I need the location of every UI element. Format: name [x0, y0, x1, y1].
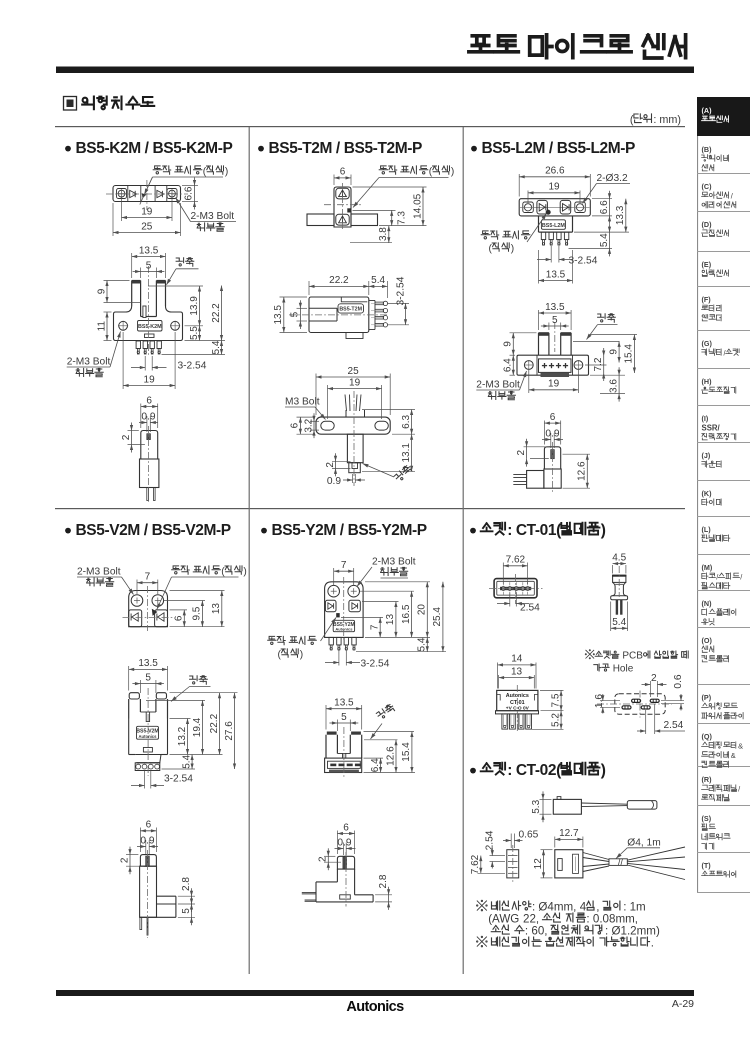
svg-text:BS5-K2M / BS5-K2M-P: BS5-K2M / BS5-K2M-P — [76, 140, 233, 157]
svg-text:0.9: 0.9 — [327, 476, 341, 487]
svg-text:6.6: 6.6 — [599, 200, 610, 214]
svg-text:(I): (I) — [702, 414, 709, 423]
svg-text:9.5: 9.5 — [192, 606, 203, 620]
svg-text:13.5: 13.5 — [545, 302, 565, 313]
svg-text:26.6: 26.6 — [545, 166, 565, 177]
svg-text:Autonics: Autonics — [335, 627, 353, 632]
svg-text:PCB: PCB — [622, 651, 643, 662]
svg-text:6.4: 6.4 — [503, 358, 514, 372]
svg-text:19.4: 19.4 — [192, 717, 203, 737]
svg-text:(J): (J) — [702, 451, 711, 460]
svg-text:A-29: A-29 — [672, 998, 694, 1010]
svg-text:5.5: 5.5 — [189, 326, 200, 340]
svg-text:7.3: 7.3 — [397, 211, 408, 225]
svg-text:13.1: 13.1 — [401, 443, 412, 463]
svg-text:Ø4mm,: Ø4mm, — [538, 901, 576, 914]
svg-text:3-2.54: 3-2.54 — [396, 276, 407, 305]
svg-text:2.8: 2.8 — [181, 877, 192, 891]
svg-text:27.6: 27.6 — [224, 721, 235, 741]
svg-text:2.54: 2.54 — [484, 830, 495, 850]
svg-text:13.9: 13.9 — [189, 296, 200, 316]
svg-text:7: 7 — [341, 560, 347, 571]
svg-text:): ) — [601, 762, 606, 779]
svg-text:(R): (R) — [702, 775, 713, 784]
svg-text:6: 6 — [340, 167, 346, 178]
svg-text:): ) — [601, 522, 606, 539]
svg-text:13: 13 — [511, 666, 523, 677]
svg-text:12.7: 12.7 — [559, 828, 579, 839]
svg-text:0.6: 0.6 — [673, 674, 684, 688]
svg-text:5.4: 5.4 — [417, 637, 428, 651]
svg-text:2: 2 — [651, 673, 657, 684]
svg-text:13: 13 — [385, 614, 396, 626]
svg-text:): ) — [225, 167, 228, 178]
svg-text:5.3: 5.3 — [531, 799, 542, 813]
svg-text:19: 19 — [349, 377, 361, 388]
svg-text:19: 19 — [141, 206, 153, 217]
svg-text:25: 25 — [141, 221, 153, 232]
svg-text:5.4: 5.4 — [371, 275, 385, 286]
svg-text:: CT-02(: : CT-02( — [507, 762, 562, 779]
svg-text:5.2: 5.2 — [550, 713, 561, 727]
svg-text:&: & — [731, 751, 736, 760]
svg-text:2-M3 Bolt: 2-M3 Bolt — [191, 211, 235, 222]
svg-text:2.54: 2.54 — [664, 720, 684, 731]
svg-text:(E): (E) — [702, 260, 712, 269]
svg-text:5: 5 — [146, 260, 152, 271]
svg-text:: CT-01(: : CT-01( — [507, 522, 562, 539]
svg-text:3-2.54: 3-2.54 — [361, 659, 390, 670]
svg-text:12: 12 — [533, 858, 544, 870]
svg-text:2: 2 — [318, 856, 329, 862]
svg-text:0.9: 0.9 — [545, 429, 559, 440]
svg-text:): ) — [511, 244, 514, 255]
svg-text:5: 5 — [145, 672, 151, 683]
svg-text:BS5-Y2M / BS5-Y2M-P: BS5-Y2M / BS5-Y2M-P — [272, 522, 427, 539]
svg-text:19: 19 — [548, 379, 560, 390]
svg-text:13.3: 13.3 — [615, 205, 626, 225]
svg-text:(A): (A) — [702, 106, 713, 115]
svg-text:13.5: 13.5 — [273, 305, 284, 325]
svg-text:2-M3 Bolt: 2-M3 Bolt — [372, 557, 416, 568]
svg-text:15.4: 15.4 — [401, 742, 412, 762]
svg-text:6: 6 — [290, 422, 301, 428]
svg-text:M3 Bolt: M3 Bolt — [285, 397, 320, 408]
svg-text:(L): (L) — [702, 525, 712, 534]
svg-text:5: 5 — [290, 311, 301, 317]
svg-text:(G): (G) — [702, 339, 713, 348]
svg-text:9: 9 — [608, 349, 619, 355]
svg-text:2-M3 Bolt: 2-M3 Bolt — [67, 357, 111, 368]
svg-text::: : — [653, 114, 656, 126]
svg-text:11: 11 — [96, 321, 107, 332]
svg-text:6: 6 — [146, 820, 152, 831]
svg-text::: : — [605, 925, 608, 938]
svg-text:BS5-K2M: BS5-K2M — [138, 324, 162, 330]
svg-text:7.62: 7.62 — [506, 555, 526, 566]
svg-text:(Q): (Q) — [702, 732, 713, 741]
svg-text:): ) — [243, 567, 246, 578]
svg-text:BS5-L2M / BS5-L2M-P: BS5-L2M / BS5-L2M-P — [482, 140, 636, 157]
svg-text:3-2.54: 3-2.54 — [164, 774, 193, 785]
svg-text:6: 6 — [174, 615, 185, 621]
svg-text:(T): (T) — [702, 861, 712, 870]
svg-text:13.5: 13.5 — [546, 269, 566, 280]
svg-text::: : — [586, 913, 589, 926]
svg-text:Ø4, 1m: Ø4, 1m — [627, 838, 660, 849]
svg-text::: : — [525, 925, 528, 938]
svg-text:6.4: 6.4 — [370, 758, 381, 772]
svg-text:2: 2 — [119, 857, 130, 863]
svg-text:0.9: 0.9 — [141, 412, 155, 423]
svg-text:14: 14 — [511, 654, 523, 665]
svg-text:7.5: 7.5 — [550, 693, 561, 707]
svg-text:14.05: 14.05 — [412, 193, 423, 218]
svg-text:2: 2 — [516, 449, 527, 455]
svg-text:5: 5 — [341, 712, 347, 723]
svg-text:5.4: 5.4 — [181, 754, 192, 768]
svg-text:6: 6 — [550, 412, 556, 423]
svg-text:16.5: 16.5 — [401, 604, 412, 624]
svg-text:7: 7 — [370, 624, 381, 630]
svg-text:2-M3 Bolt: 2-M3 Bolt — [476, 380, 520, 391]
svg-text:Hole: Hole — [613, 664, 634, 675]
svg-text:(N): (N) — [702, 599, 713, 608]
svg-text:20: 20 — [417, 604, 428, 616]
svg-text:(K): (K) — [702, 489, 713, 498]
svg-text:3-2.54: 3-2.54 — [178, 361, 207, 372]
svg-text:7.2: 7.2 — [593, 357, 604, 371]
svg-text:5.4: 5.4 — [599, 233, 610, 247]
svg-text:9: 9 — [503, 341, 514, 347]
svg-text:3.2: 3.2 — [303, 418, 314, 432]
svg-text:BS5-T2M / BS5-T2M-P: BS5-T2M / BS5-T2M-P — [269, 140, 423, 157]
svg-text:13.5: 13.5 — [334, 698, 354, 709]
svg-text:3.6: 3.6 — [608, 379, 619, 393]
svg-text:5: 5 — [552, 315, 558, 326]
svg-text:(AWG: (AWG — [488, 913, 519, 926]
svg-text:(O): (O) — [702, 636, 713, 645]
svg-text:19: 19 — [548, 182, 560, 193]
svg-text:22.2: 22.2 — [211, 303, 222, 323]
svg-text:BS5-V2M / BS5-V2M-P: BS5-V2M / BS5-V2M-P — [76, 522, 231, 539]
svg-text:4.5: 4.5 — [612, 552, 626, 563]
svg-text:13.2: 13.2 — [177, 726, 188, 746]
svg-text:(P): (P) — [702, 693, 712, 702]
svg-text:13: 13 — [211, 603, 222, 615]
svg-text:5: 5 — [181, 908, 192, 914]
svg-text:2.8: 2.8 — [378, 874, 389, 888]
svg-text:6.3: 6.3 — [401, 415, 412, 429]
svg-text:(: ( — [489, 244, 493, 255]
svg-text:(H): (H) — [702, 377, 713, 386]
svg-text:60,: 60, — [531, 925, 547, 938]
svg-text:0.9: 0.9 — [337, 838, 351, 849]
svg-text:25: 25 — [348, 366, 360, 377]
svg-text:2-Ø3.2: 2-Ø3.2 — [597, 173, 628, 184]
svg-text:12.6: 12.6 — [577, 461, 588, 481]
svg-text:6: 6 — [343, 822, 349, 833]
svg-text:&: & — [738, 742, 743, 751]
svg-text:7: 7 — [145, 572, 151, 583]
svg-text:mm): mm) — [659, 114, 681, 126]
svg-text:): ) — [451, 167, 454, 178]
svg-text:(: ( — [278, 650, 282, 661]
svg-text:(F): (F) — [702, 295, 712, 304]
svg-text:13.5: 13.5 — [139, 245, 159, 256]
svg-text:5.4: 5.4 — [211, 340, 222, 354]
svg-text:Autonics: Autonics — [346, 999, 404, 1015]
svg-text:22.2: 22.2 — [209, 713, 220, 733]
svg-text:(B): (B) — [702, 145, 713, 154]
svg-text:.: . — [651, 937, 654, 950]
svg-text:6.6: 6.6 — [184, 186, 195, 200]
svg-text:5.4: 5.4 — [612, 617, 626, 628]
svg-text:2.54: 2.54 — [520, 603, 540, 614]
svg-text:(: ( — [630, 114, 634, 126]
svg-text:2-M3 Bolt: 2-M3 Bolt — [77, 567, 121, 578]
svg-text:SSR/: SSR/ — [702, 424, 721, 433]
svg-text:19: 19 — [144, 374, 156, 385]
svg-text:3.8: 3.8 — [378, 227, 389, 241]
svg-text:BS5-T2M: BS5-T2M — [339, 307, 362, 313]
svg-text:7.62: 7.62 — [470, 854, 481, 874]
svg-text:(: ( — [429, 167, 433, 178]
svg-text:25.4: 25.4 — [432, 607, 443, 627]
svg-text:(: ( — [221, 567, 225, 578]
svg-text:3-2.54: 3-2.54 — [569, 256, 598, 267]
svg-text:0.65: 0.65 — [519, 830, 539, 841]
svg-text:): ) — [300, 650, 303, 661]
svg-text:13.5: 13.5 — [138, 658, 158, 669]
svg-text:2: 2 — [121, 434, 132, 440]
svg-text:(: ( — [203, 167, 207, 178]
svg-text:2: 2 — [325, 462, 336, 468]
svg-text:(S): (S) — [702, 814, 712, 823]
svg-text:0.9: 0.9 — [140, 836, 154, 847]
svg-text:12.6: 12.6 — [385, 746, 396, 766]
svg-text:(D): (D) — [702, 220, 713, 229]
svg-text:22.2: 22.2 — [329, 275, 349, 286]
svg-text:9: 9 — [96, 288, 107, 294]
svg-text:15.4: 15.4 — [624, 344, 635, 364]
svg-text:(C): (C) — [702, 182, 713, 191]
svg-text:BS5-L2M: BS5-L2M — [542, 223, 566, 229]
svg-text:6: 6 — [146, 395, 152, 406]
svg-text:(M): (M) — [702, 563, 713, 572]
svg-text:1.6: 1.6 — [594, 694, 605, 708]
